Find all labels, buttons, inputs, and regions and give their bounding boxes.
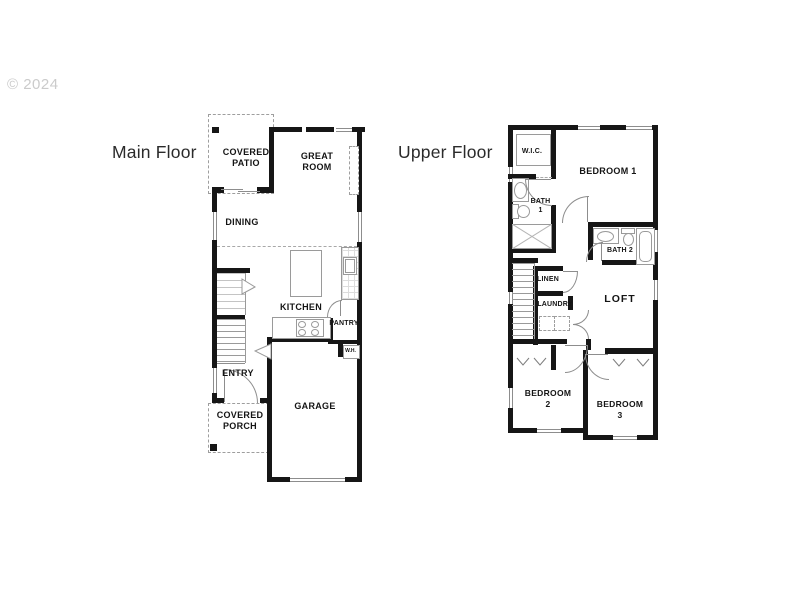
bath1-door-leaf [525, 179, 551, 180]
room-label-bath1: BATH 1 [528, 198, 553, 216]
window [613, 436, 637, 440]
wall [551, 345, 556, 370]
laundry-door-swing [573, 324, 589, 339]
window [509, 388, 513, 408]
bedroom1-door-swing [562, 196, 589, 223]
sink [597, 231, 614, 242]
window [654, 280, 658, 300]
wall [600, 125, 626, 130]
wall [508, 339, 567, 344]
linen-door-leaf [563, 271, 577, 272]
window [537, 429, 561, 433]
closet-rod-mark [612, 358, 626, 367]
linen-door-swing [563, 271, 578, 293]
room-label-laundry: LAUNDRY [533, 301, 577, 310]
shower [512, 224, 552, 249]
bedroom1-door-leaf [587, 196, 588, 222]
window [578, 126, 600, 130]
wall [602, 260, 637, 265]
bathtub-basin [639, 231, 652, 262]
floor-plan-sheet: © 2024 Main Floor Upper Floor [0, 0, 800, 600]
room-label-linen: LINEN [534, 276, 562, 285]
wall [653, 300, 658, 440]
bath2-door-leaf [601, 242, 602, 261]
room-label-loft: LOFT [597, 293, 643, 306]
wall [605, 348, 653, 354]
room-label-wic: W.I.C. [512, 148, 552, 157]
closet-door [536, 177, 552, 178]
wall [508, 125, 578, 130]
bedroom2-door-leaf [565, 345, 587, 346]
room-label-bath2: BATH 2 [607, 243, 633, 260]
closet-rod-mark [516, 357, 530, 366]
laundry-door-swing [573, 310, 589, 325]
bedroom3-door-swing [585, 354, 609, 380]
dryer [554, 316, 570, 331]
wall [653, 130, 658, 230]
bedroom3-door-leaf [585, 354, 608, 355]
wall [588, 222, 653, 227]
washer [539, 316, 555, 331]
stairs [512, 263, 535, 339]
room-label-bedroom1: BEDROOM 1 [571, 166, 645, 177]
window [626, 126, 652, 130]
closet-rod-mark [533, 357, 547, 366]
closet-rod-mark [636, 358, 650, 367]
wall [508, 408, 513, 433]
room-label-bedroom3: BEDROOM 3 [597, 399, 643, 421]
upper-floor-plan: W.I.C. BEDROOM 1 BATH 1 BATH 2 LINEN LAU… [0, 0, 800, 600]
room-label-bedroom2: BEDROOM 2 [525, 388, 571, 410]
wall [637, 435, 658, 440]
